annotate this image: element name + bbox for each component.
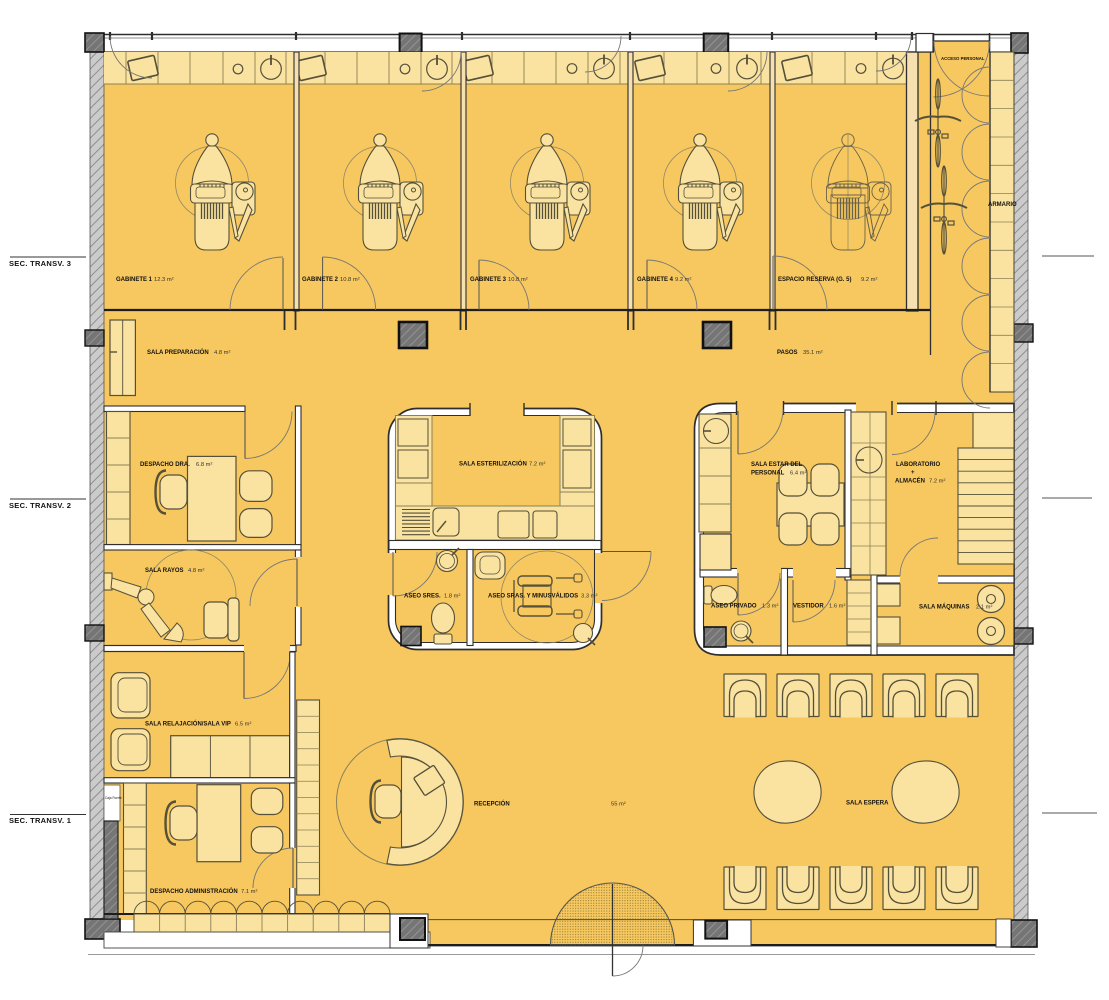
svg-text:LABORATORIO: LABORATORIO xyxy=(896,462,940,468)
svg-text:SEC. TRANSV. 3: SEC. TRANSV. 3 xyxy=(9,259,71,268)
svg-text:SALA MÁQUINAS: SALA MÁQUINAS xyxy=(919,604,969,611)
svg-text:GABINETE 3: GABINETE 3 xyxy=(470,277,507,283)
svg-text:SALA RAYOS: SALA RAYOS xyxy=(145,568,184,574)
svg-text:PERSONAL: PERSONAL xyxy=(751,471,785,477)
svg-text:1.8 m²: 1.8 m² xyxy=(444,594,460,600)
svg-text:6.8 m²: 6.8 m² xyxy=(196,462,212,468)
svg-text:4.8 m²: 4.8 m² xyxy=(214,350,230,356)
svg-text:10.8 m²: 10.8 m² xyxy=(508,277,528,283)
svg-text:12.3 m²: 12.3 m² xyxy=(154,277,174,283)
svg-text:PASOS: PASOS xyxy=(777,350,798,356)
svg-text:DESPACHO ADMINISTRACIÓN: DESPACHO ADMINISTRACIÓN xyxy=(150,887,238,895)
svg-text:7.2 m²: 7.2 m² xyxy=(929,479,945,485)
svg-text:ALMACÉN: ALMACÉN xyxy=(895,477,925,485)
svg-text:2.1 m²: 2.1 m² xyxy=(976,605,992,611)
svg-text:55 m²: 55 m² xyxy=(611,802,626,808)
svg-text:ESPACIO RESERVA (G. 5): ESPACIO RESERVA (G. 5) xyxy=(778,277,851,283)
svg-text:ARMARIO: ARMARIO xyxy=(988,202,1017,208)
svg-text:ASEO SRES.: ASEO SRES. xyxy=(404,594,441,600)
svg-text:ASEO SRAS. Y MINUSVÁLIDOS: ASEO SRAS. Y MINUSVÁLIDOS xyxy=(488,593,578,600)
svg-text:+: + xyxy=(911,470,915,476)
svg-text:SEC. TRANSV. 2: SEC. TRANSV. 2 xyxy=(9,501,71,510)
svg-text:VESTIDOR: VESTIDOR xyxy=(793,604,824,610)
svg-text:4.8 m²: 4.8 m² xyxy=(188,568,204,574)
svg-text:GABINETE 4: GABINETE 4 xyxy=(637,277,674,283)
svg-text:SALA ESTAR DEL: SALA ESTAR DEL xyxy=(751,462,803,468)
svg-text:9.2 m²: 9.2 m² xyxy=(675,277,691,283)
svg-text:Caja Fuerte: Caja Fuerte xyxy=(105,796,122,800)
svg-text:7.1 m²: 7.1 m² xyxy=(241,889,257,895)
svg-text:ACCESO PERSONAL: ACCESO PERSONAL xyxy=(941,56,985,61)
svg-text:10.8 m²: 10.8 m² xyxy=(340,277,360,283)
svg-text:SEC. TRANSV. 1: SEC. TRANSV. 1 xyxy=(9,816,71,825)
svg-text:SALA ESTERILIZACIÓN: SALA ESTERILIZACIÓN xyxy=(459,460,527,468)
svg-text:ASEO PRIVADO: ASEO PRIVADO xyxy=(711,604,757,610)
svg-text:6.5 m²: 6.5 m² xyxy=(235,722,251,728)
svg-text:6.4 m²: 6.4 m² xyxy=(790,471,806,477)
svg-text:GABINETE 2: GABINETE 2 xyxy=(302,277,339,283)
svg-text:7.2 m²: 7.2 m² xyxy=(529,462,545,468)
svg-text:1.6 m²: 1.6 m² xyxy=(829,604,845,610)
svg-text:1.3 m²: 1.3 m² xyxy=(762,604,778,610)
svg-text:SALA RELAJACIÓN/SALA VIP: SALA RELAJACIÓN/SALA VIP xyxy=(145,720,231,728)
svg-text:RECEPCIÓN: RECEPCIÓN xyxy=(474,800,510,808)
svg-text:3.3 m²: 3.3 m² xyxy=(581,594,597,600)
svg-text:35.1 m²: 35.1 m² xyxy=(803,350,823,356)
svg-text:SALA ESPERA: SALA ESPERA xyxy=(846,801,889,807)
svg-text:DESPACHO DRA.: DESPACHO DRA. xyxy=(140,462,190,468)
svg-text:SALA PREPARACIÓN: SALA PREPARACIÓN xyxy=(147,348,209,356)
svg-text:GABINETE 1: GABINETE 1 xyxy=(116,277,153,283)
svg-text:9.2 m²: 9.2 m² xyxy=(861,277,877,283)
